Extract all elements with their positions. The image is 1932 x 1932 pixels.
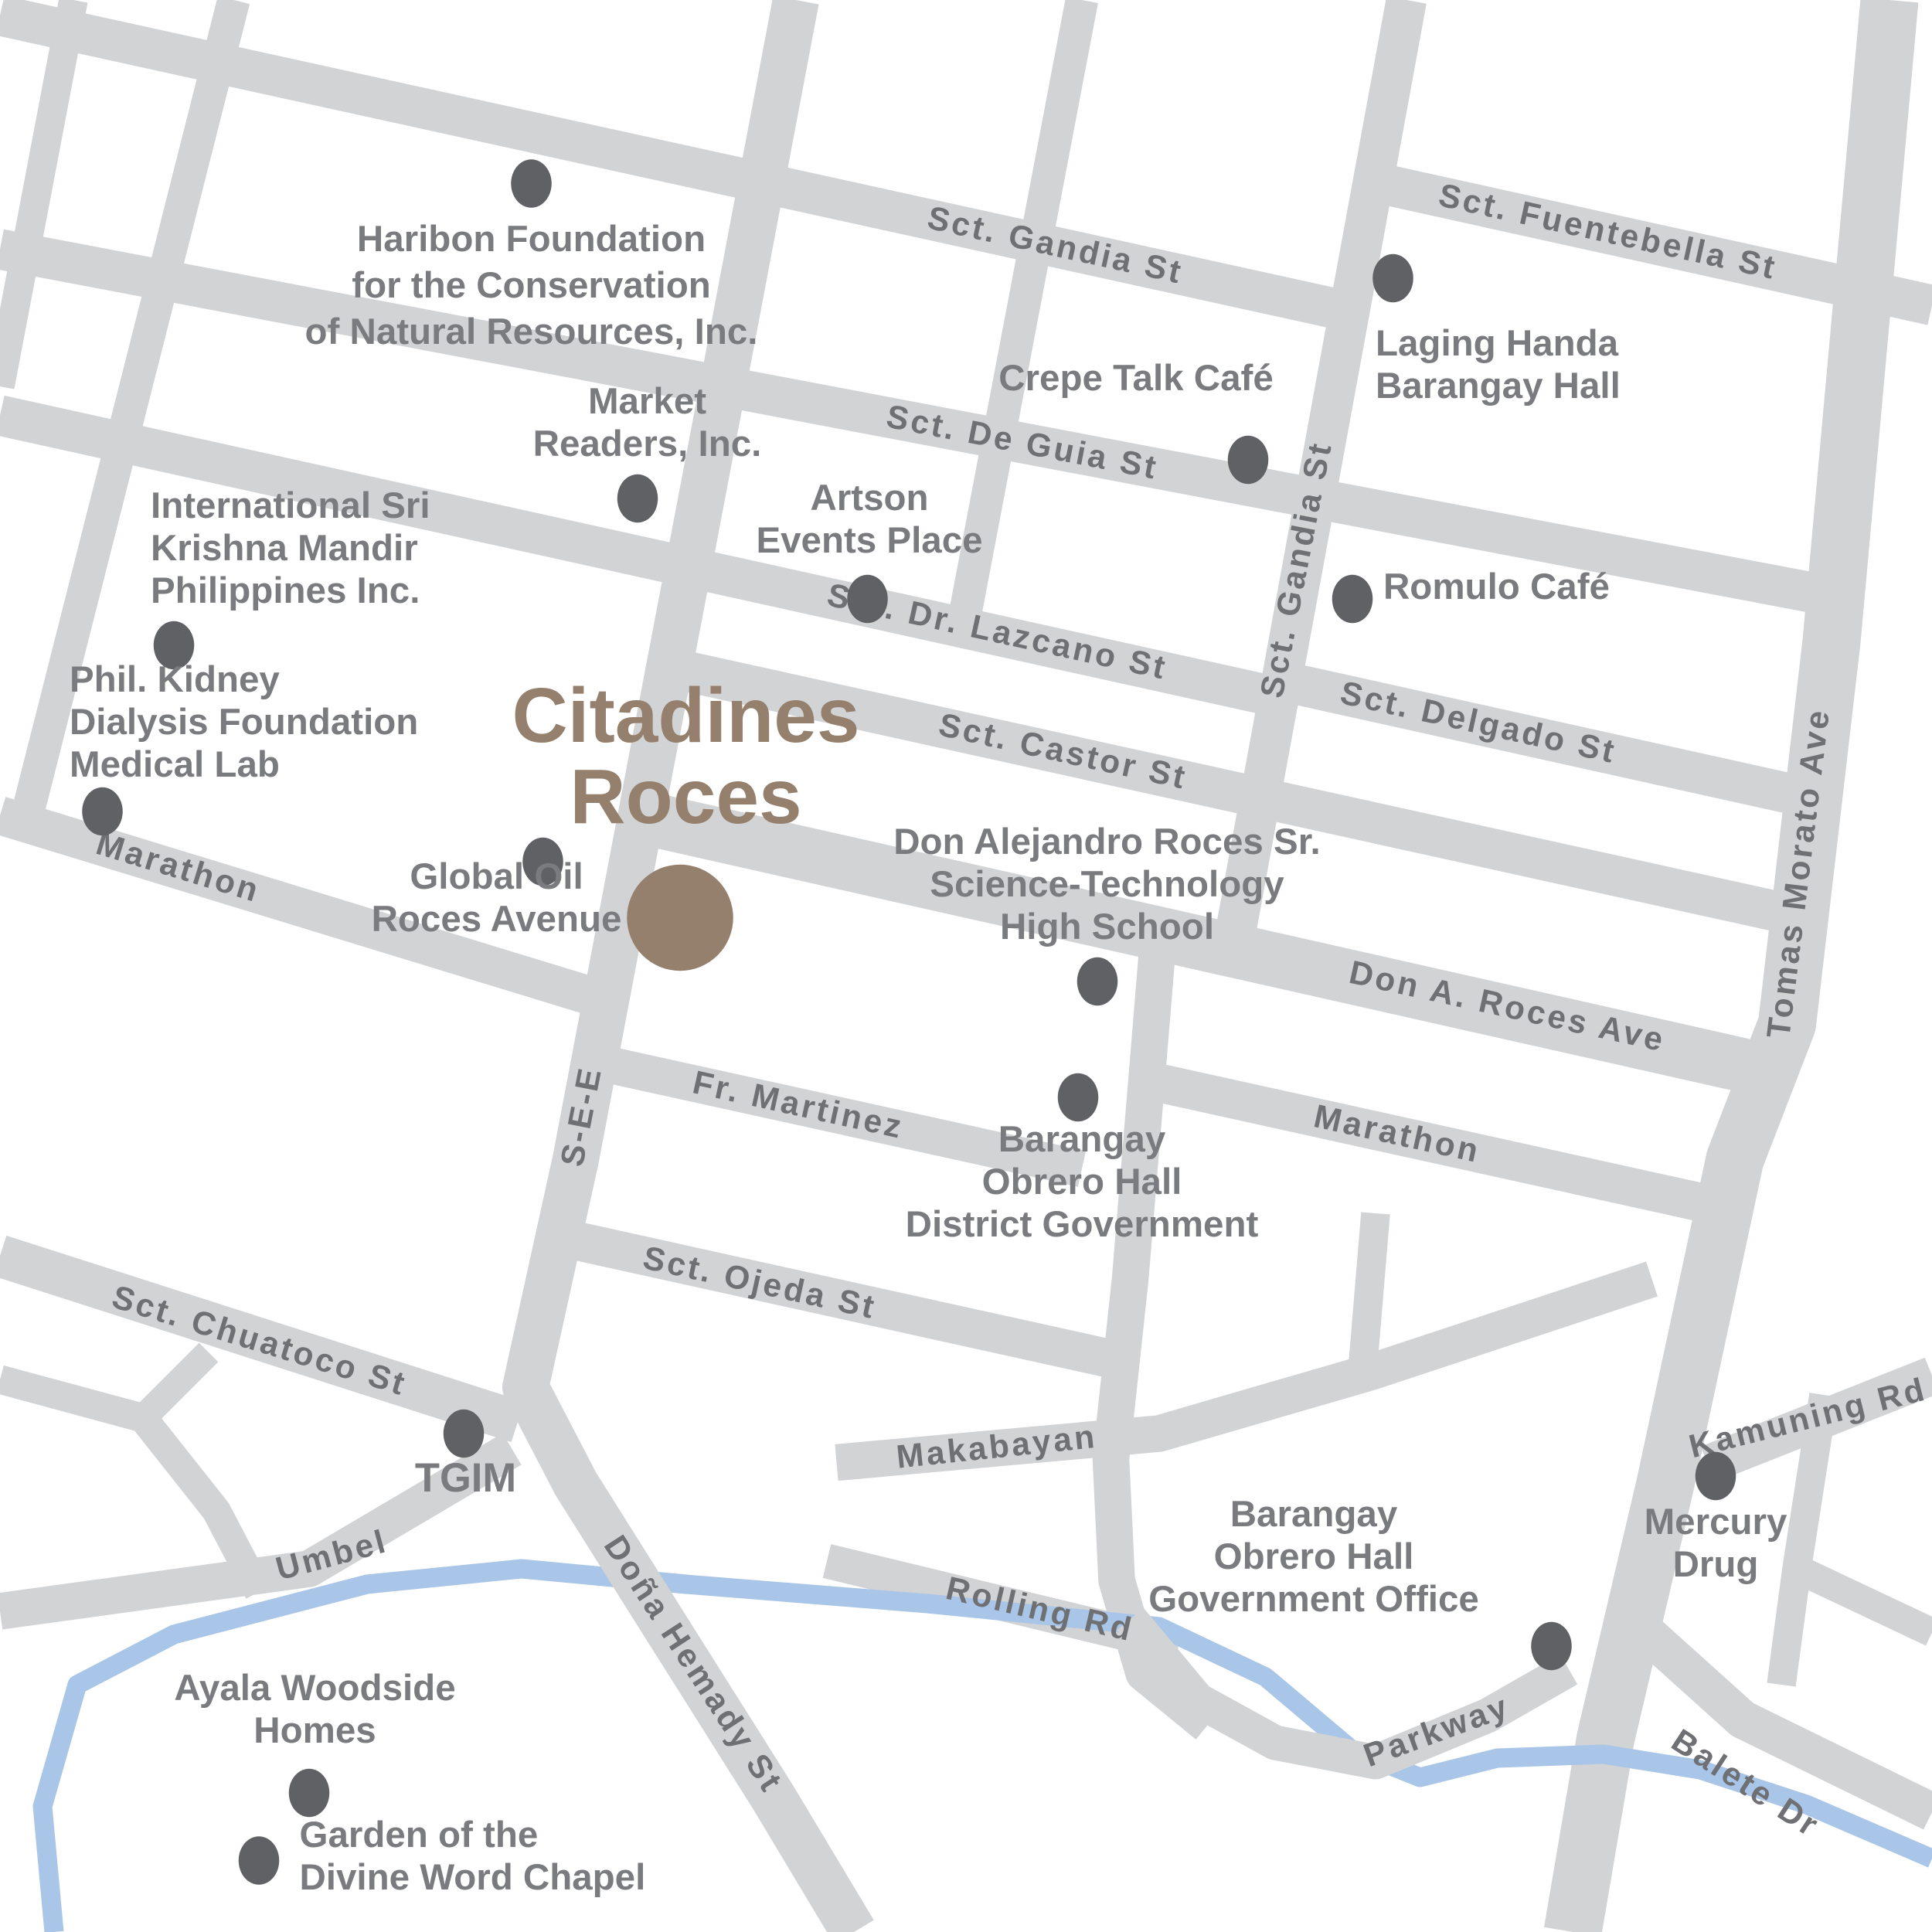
poi-label-tgim: TGIM	[415, 1455, 516, 1501]
street-makabayan-stub	[1362, 1213, 1376, 1376]
poi-dot-tgim	[444, 1410, 485, 1458]
poi-label-laging-handa-barangay-hall: Laging HandaBarangay Hall	[1376, 323, 1621, 406]
poi-dot-don-alejandro-roces-sr-science-technolog	[1077, 957, 1118, 1006]
poi-dot-crepe-talk-caf	[1228, 436, 1269, 485]
poi-dot-garden-of-the-divine-word-chapel	[239, 1836, 280, 1885]
poi-dot-barangay-obrero-hall-district-government	[1058, 1073, 1099, 1122]
poi-label-haribon-foundation-for-the-conservation-: Haribon Foundationfor the Conservationof…	[304, 219, 757, 352]
poi-dot-romulo-caf	[1332, 575, 1373, 624]
poi-dot-barangay-obrero-hall-government-office	[1531, 1622, 1572, 1671]
map-canvas: Sct. Gandia StSct. Fuentebella StSct. De…	[0, 0, 1932, 1932]
poi-dot-ayala-woodside-homes	[289, 1769, 330, 1818]
hero-marker-citadines-roces	[627, 865, 733, 971]
poi-dot-haribon-foundation-for-the-conservation-	[511, 159, 552, 208]
poi-dot-market-readers-inc	[617, 474, 658, 523]
poi-dot-phil-kidney-dialysis-foundation-medical-	[82, 787, 123, 836]
poi-dot-artson-events-place	[847, 575, 888, 624]
poi-label-crepe-talk-caf: Crepe Talk Café	[998, 358, 1274, 399]
vicinity-map: Sct. Gandia StSct. Fuentebella StSct. De…	[0, 0, 1932, 1932]
poi-label-international-sri-krishna-mandir-philipp: International SriKrishna MandirPhilippin…	[151, 485, 430, 611]
poi-dot-mercury-drug	[1696, 1452, 1736, 1501]
poi-dot-laging-handa-barangay-hall	[1372, 254, 1413, 303]
poi-label-romulo-caf: Romulo Café	[1383, 566, 1610, 607]
